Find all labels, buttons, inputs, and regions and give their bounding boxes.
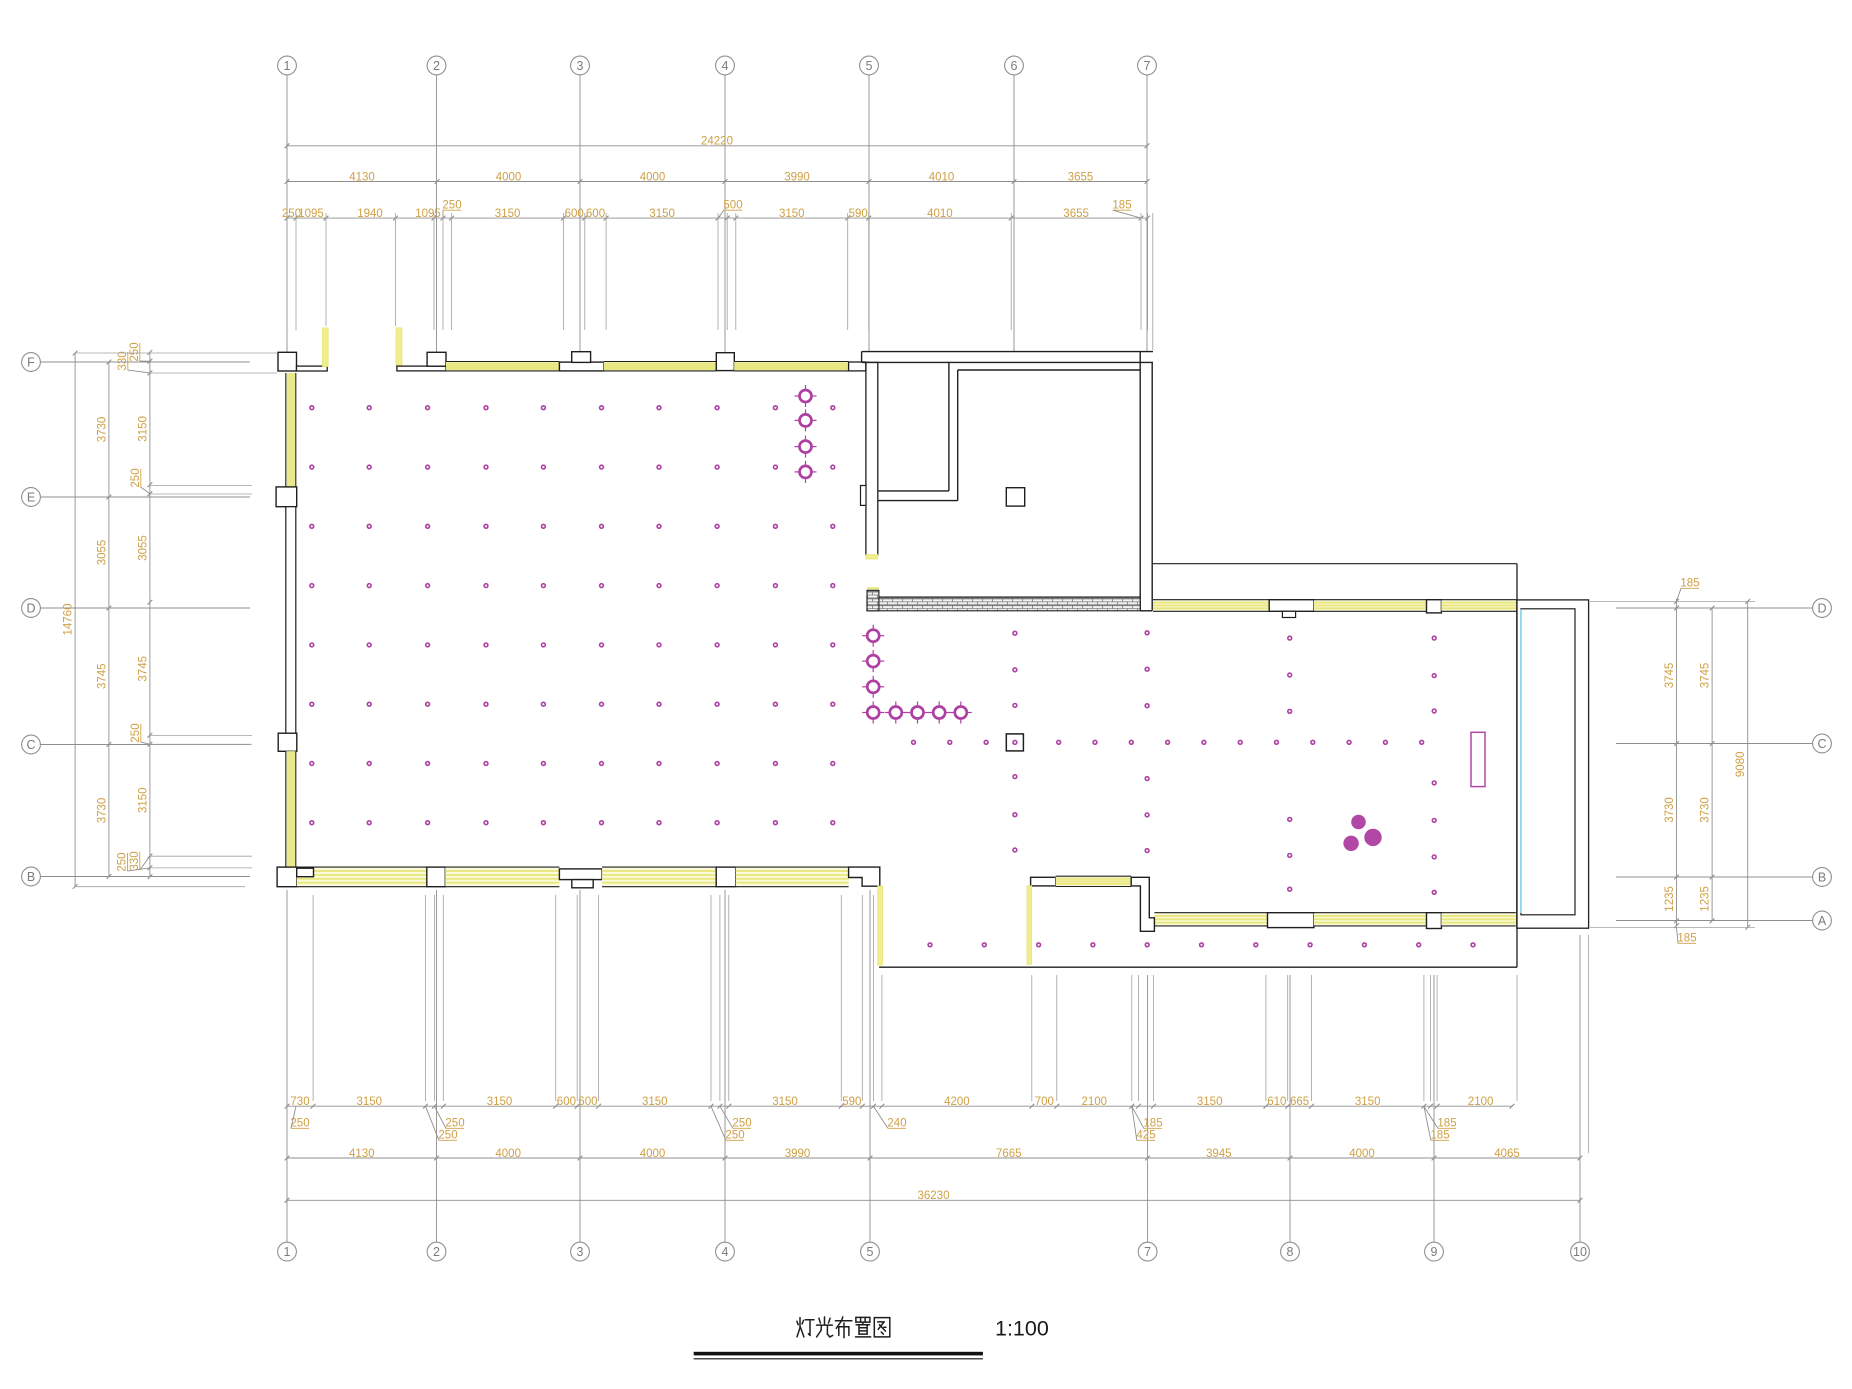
svg-text:185: 185 — [1437, 1118, 1456, 1130]
svg-text:4000: 4000 — [1349, 1148, 1375, 1160]
svg-text:4200: 4200 — [944, 1096, 970, 1108]
svg-text:3730: 3730 — [96, 798, 108, 824]
svg-text:3150: 3150 — [137, 787, 149, 813]
svg-text:425: 425 — [1136, 1130, 1155, 1142]
svg-text:3150: 3150 — [495, 208, 521, 220]
svg-text:250: 250 — [130, 723, 142, 742]
svg-text:36230: 36230 — [918, 1190, 950, 1202]
svg-text:E: E — [27, 490, 35, 504]
svg-text:2: 2 — [433, 59, 440, 73]
svg-text:3150: 3150 — [772, 1096, 798, 1108]
svg-text:4000: 4000 — [640, 1148, 666, 1160]
svg-text:330: 330 — [117, 351, 129, 370]
svg-text:C: C — [26, 738, 35, 752]
svg-text:5: 5 — [866, 59, 873, 73]
svg-text:B: B — [27, 870, 35, 884]
svg-text:250: 250 — [725, 1130, 744, 1142]
svg-text:3990: 3990 — [784, 171, 810, 183]
svg-text:730: 730 — [290, 1096, 309, 1108]
svg-text:1: 1 — [284, 59, 291, 73]
svg-text:2: 2 — [433, 1245, 440, 1259]
svg-text:4130: 4130 — [349, 171, 375, 183]
svg-text:185: 185 — [1112, 199, 1131, 211]
svg-text:1: 1 — [284, 1245, 291, 1259]
svg-text:9: 9 — [1431, 1245, 1438, 1259]
svg-text:3745: 3745 — [1664, 663, 1676, 689]
svg-text:3990: 3990 — [785, 1148, 811, 1160]
svg-text:185: 185 — [1680, 578, 1699, 590]
svg-text:4010: 4010 — [927, 208, 953, 220]
svg-text:1235: 1235 — [1700, 886, 1712, 912]
svg-text:4130: 4130 — [349, 1148, 375, 1160]
svg-text:4000: 4000 — [496, 171, 522, 183]
svg-text:6: 6 — [1011, 59, 1018, 73]
svg-text:250: 250 — [445, 1118, 464, 1130]
svg-text:250: 250 — [442, 199, 461, 211]
svg-text:600: 600 — [565, 208, 584, 220]
svg-text:4000: 4000 — [495, 1148, 521, 1160]
svg-text:10: 10 — [1573, 1245, 1587, 1259]
svg-text:600: 600 — [557, 1096, 576, 1108]
svg-text:600: 600 — [586, 208, 605, 220]
svg-text:590: 590 — [842, 1096, 861, 1108]
svg-text:1940: 1940 — [357, 208, 383, 220]
svg-text:250: 250 — [130, 468, 142, 487]
svg-text:3150: 3150 — [1355, 1096, 1381, 1108]
svg-text:4000: 4000 — [640, 171, 666, 183]
svg-text:185: 185 — [1677, 933, 1696, 945]
svg-text:7: 7 — [1144, 59, 1151, 73]
svg-text:240: 240 — [887, 1118, 906, 1130]
svg-text:3150: 3150 — [779, 208, 805, 220]
svg-text:3945: 3945 — [1206, 1148, 1232, 1160]
svg-text:185: 185 — [1143, 1118, 1162, 1130]
svg-text:590: 590 — [849, 208, 868, 220]
svg-text:3730: 3730 — [96, 417, 108, 443]
svg-text:665: 665 — [1290, 1096, 1309, 1108]
svg-text:330: 330 — [129, 851, 141, 870]
svg-text:1235: 1235 — [1664, 886, 1676, 912]
svg-text:9080: 9080 — [1735, 752, 1747, 778]
svg-text:250: 250 — [732, 1118, 751, 1130]
svg-text:1095: 1095 — [415, 208, 441, 220]
svg-text:14760: 14760 — [63, 604, 75, 636]
svg-text:5: 5 — [867, 1245, 874, 1259]
svg-text:4: 4 — [722, 59, 729, 73]
svg-text:3: 3 — [577, 59, 584, 73]
svg-text:250: 250 — [129, 342, 141, 361]
svg-text:250: 250 — [438, 1130, 457, 1142]
svg-text:1:100: 1:100 — [995, 1317, 1049, 1341]
svg-text:3745: 3745 — [1700, 663, 1712, 689]
svg-text:3150: 3150 — [487, 1096, 513, 1108]
svg-text:600: 600 — [578, 1096, 597, 1108]
svg-text:3150: 3150 — [357, 1096, 383, 1108]
svg-text:3730: 3730 — [1700, 797, 1712, 823]
svg-text:2100: 2100 — [1468, 1096, 1494, 1108]
svg-text:3655: 3655 — [1063, 208, 1089, 220]
svg-text:24220: 24220 — [701, 136, 733, 148]
svg-text:700: 700 — [1035, 1096, 1054, 1108]
svg-text:7: 7 — [1144, 1245, 1151, 1259]
svg-text:3150: 3150 — [137, 416, 149, 442]
svg-text:185: 185 — [1430, 1130, 1449, 1142]
svg-text:F: F — [27, 355, 35, 369]
svg-text:4: 4 — [722, 1245, 729, 1259]
svg-text:2100: 2100 — [1082, 1096, 1108, 1108]
svg-text:250: 250 — [117, 852, 129, 871]
svg-text:4065: 4065 — [1494, 1148, 1520, 1160]
svg-text:3745: 3745 — [137, 656, 149, 682]
svg-text:3730: 3730 — [1664, 797, 1676, 823]
svg-text:3745: 3745 — [96, 663, 108, 689]
svg-text:7665: 7665 — [996, 1148, 1022, 1160]
svg-text:3150: 3150 — [642, 1096, 668, 1108]
svg-text:8: 8 — [1287, 1245, 1294, 1259]
svg-text:4010: 4010 — [929, 171, 955, 183]
svg-text:250: 250 — [282, 208, 301, 220]
svg-text:3055: 3055 — [137, 535, 149, 561]
svg-text:3655: 3655 — [1068, 171, 1094, 183]
svg-text:3150: 3150 — [649, 208, 675, 220]
svg-text:C: C — [1817, 737, 1826, 751]
svg-text:610: 610 — [1267, 1096, 1286, 1108]
svg-text:3055: 3055 — [96, 540, 108, 566]
svg-text:1095: 1095 — [298, 208, 324, 220]
svg-text:500: 500 — [723, 199, 742, 211]
svg-text:D: D — [1817, 601, 1826, 615]
svg-text:3: 3 — [577, 1245, 584, 1259]
svg-text:B: B — [1818, 870, 1826, 884]
svg-text:A: A — [1818, 914, 1827, 928]
svg-text:D: D — [26, 601, 35, 615]
svg-text:3150: 3150 — [1197, 1096, 1223, 1108]
